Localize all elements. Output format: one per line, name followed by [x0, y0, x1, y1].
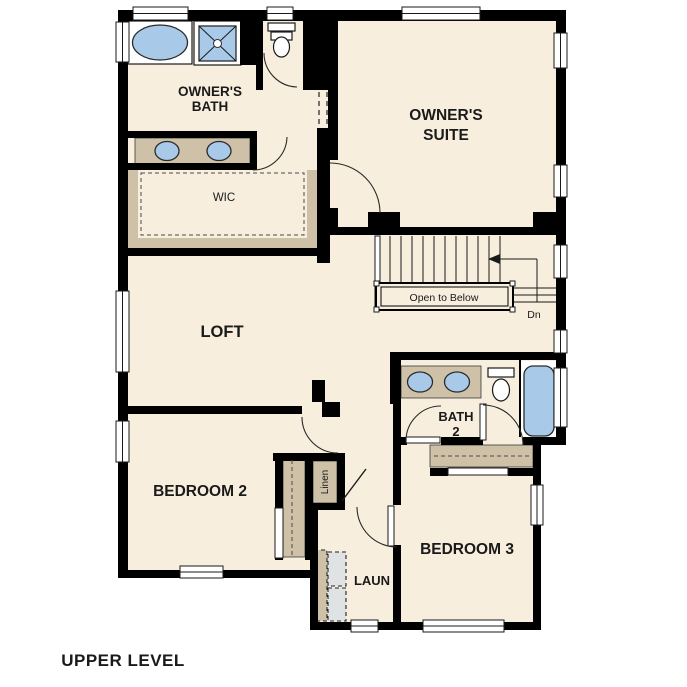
wall-bath2-left [390, 352, 401, 404]
floor-plan-drawing: OWNER'S BATH OWNER'S SUITE WIC LOFT Open… [0, 0, 687, 687]
wic-shelf-right [307, 170, 317, 248]
wic-shelf-left [128, 170, 138, 248]
wall-shower-divider [240, 10, 263, 65]
wall-tub-partition [519, 360, 521, 437]
wic-label: WIC [213, 192, 235, 204]
sink-icon [155, 142, 179, 161]
laundry-label: LAUN [354, 573, 390, 588]
bedroom2-closet-opening [275, 508, 283, 558]
page-title: UPPER LEVEL [61, 651, 185, 670]
bath2-label-line1: BATH [438, 409, 473, 424]
rail-post [374, 281, 379, 286]
wall-bedroom3-closet-front-right [508, 468, 538, 476]
wall-loft-bedroom2 [118, 406, 302, 414]
sink-icon [207, 142, 231, 161]
wall-suite-pier-right [533, 212, 556, 235]
wall-wic-bottom [118, 248, 330, 256]
wall-bath2-bottom-2 [441, 437, 483, 445]
floors [124, 14, 562, 626]
wall-hall-west-2 [322, 402, 340, 417]
open-to-below-label: Open to Below [410, 292, 479, 304]
wall-suite-hinge [328, 208, 338, 235]
rail-post [374, 307, 379, 312]
shower-drain-icon [214, 40, 222, 48]
bath2-door-leaf [406, 437, 440, 443]
bath2-tub-door-leaf [480, 404, 486, 440]
rail-post [510, 307, 515, 312]
soaking-tub-icon [133, 25, 188, 60]
wall-bedroom3-closet-front-left [430, 468, 448, 476]
owners-bath-label-line1: OWNER'S [178, 84, 242, 99]
bathtub-icon [524, 366, 554, 436]
bedroom3-label: BEDROOM 3 [420, 541, 514, 558]
wall-vanity-post [250, 131, 257, 170]
wall-vanity-bottom [128, 163, 257, 170]
dryer-icon [328, 588, 346, 621]
wall-suite-pier-left [368, 212, 400, 235]
wall-bath2-top [390, 352, 566, 360]
wall-bedroom3-left-upper [393, 404, 401, 505]
rail-post [510, 281, 515, 286]
wic-shelf-bottom [128, 238, 317, 248]
owners-bath-vanity [135, 138, 250, 164]
linen-label: Linen [320, 470, 331, 494]
wall-linen-right [337, 453, 345, 510]
wall-bedroom3-left-lower [393, 545, 401, 622]
wall-bath2-bottom-3 [523, 437, 566, 445]
wall-wc-right [303, 10, 330, 90]
owners-bath-label-line2: BATH [192, 99, 229, 114]
wall-suite-left [328, 21, 338, 160]
toilet-tank-icon [488, 368, 514, 377]
loft-label: LOFT [200, 323, 243, 341]
bedroom2-closet [283, 457, 305, 557]
wall-bath2-bottom-1 [393, 437, 407, 445]
down-label: Dn [527, 309, 541, 321]
toilet-bowl-icon [274, 37, 290, 57]
wall-vanity-top [128, 131, 257, 138]
wall-linen-bottom [307, 503, 345, 510]
sink-icon [408, 372, 433, 392]
floor-plan-page: OWNER'S BATH OWNER'S SUITE WIC LOFT Open… [0, 0, 687, 687]
owners-suite-label-line2: SUITE [423, 127, 469, 144]
washer-icon [328, 552, 346, 586]
toilet-tank-icon [268, 23, 295, 31]
wall-hall-west-1 [312, 380, 325, 402]
owners-suite-label-line1: OWNER'S [409, 107, 482, 124]
bedroom3-door-leaf [388, 506, 394, 546]
bedroom2-label: BEDROOM 2 [153, 483, 247, 500]
toilet-bowl-icon [493, 379, 510, 401]
bath2-label-line2: 2 [452, 424, 459, 439]
bedroom3-closet-slider [448, 468, 508, 475]
sink-icon [445, 372, 470, 392]
bedroom3-closet [430, 445, 533, 467]
